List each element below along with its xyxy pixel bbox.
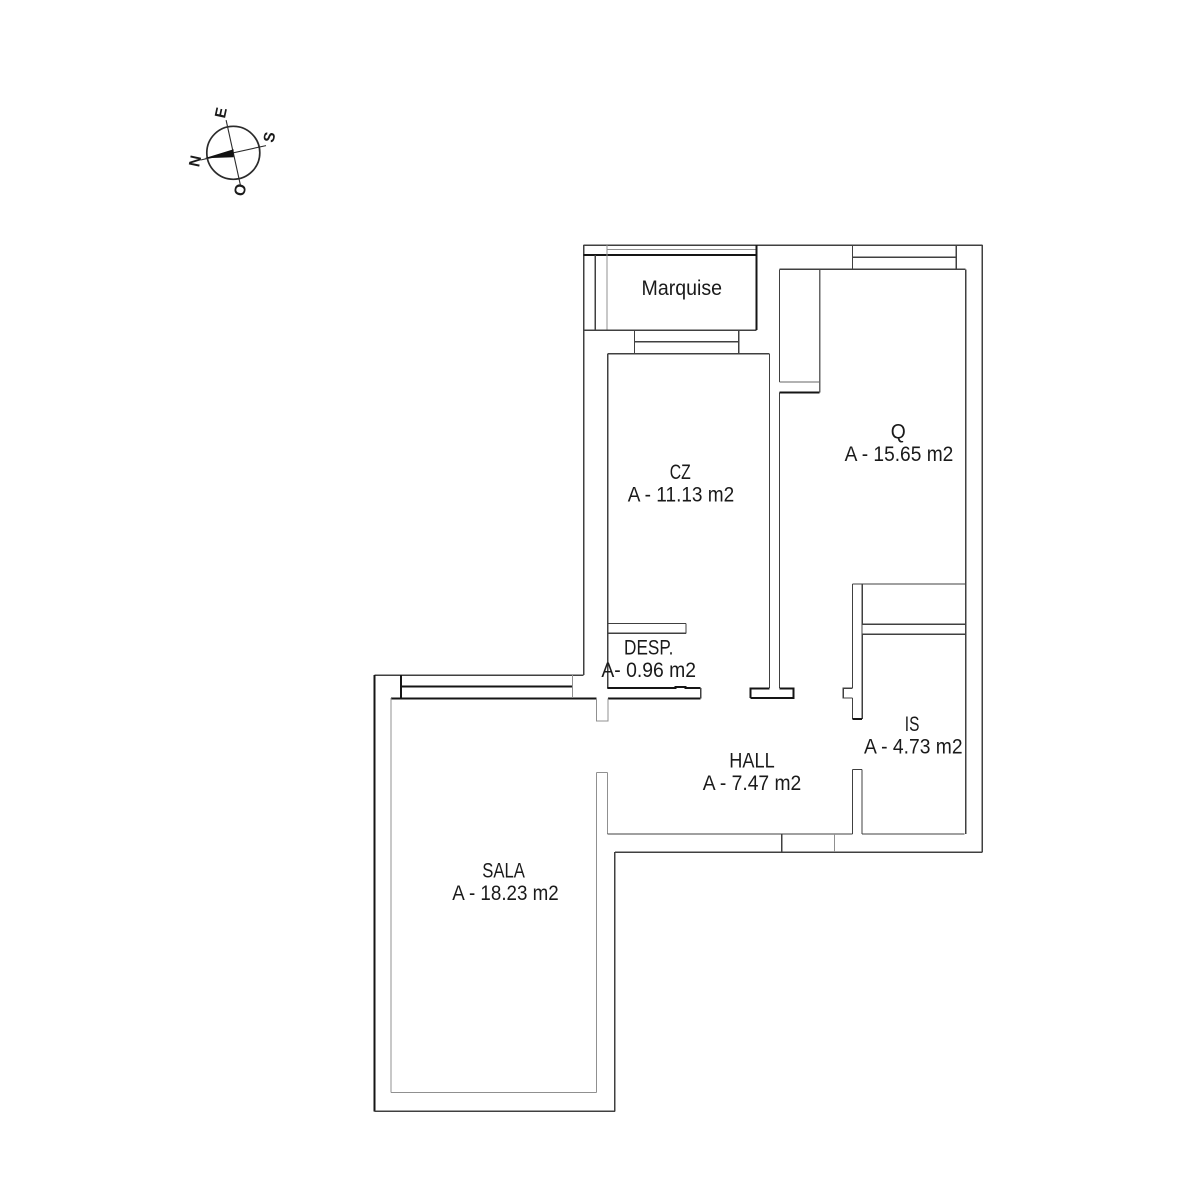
svg-text:S: S: [261, 130, 280, 144]
svg-text:O: O: [231, 182, 250, 197]
svg-text:HALL: HALL: [729, 748, 774, 772]
svg-text:A- 0.96 m2: A- 0.96 m2: [601, 658, 696, 682]
svg-text:E: E: [212, 106, 231, 120]
svg-text:SALA: SALA: [482, 859, 525, 883]
svg-text:N: N: [186, 154, 205, 168]
svg-text:A - 11.13 m2: A - 11.13 m2: [628, 483, 735, 507]
svg-text:A - 18.23 m2: A - 18.23 m2: [452, 881, 559, 905]
svg-text:A - 7.47 m2: A - 7.47 m2: [703, 771, 802, 795]
svg-text:DESP.: DESP.: [624, 636, 673, 660]
svg-text:A - 15.65 m2: A - 15.65 m2: [845, 442, 954, 466]
svg-text:Marquise: Marquise: [642, 276, 723, 300]
svg-text:Q: Q: [891, 419, 906, 443]
svg-text:A - 4.73 m2: A - 4.73 m2: [864, 735, 963, 759]
svg-text:CZ: CZ: [670, 460, 691, 484]
svg-text:IS: IS: [905, 712, 920, 736]
